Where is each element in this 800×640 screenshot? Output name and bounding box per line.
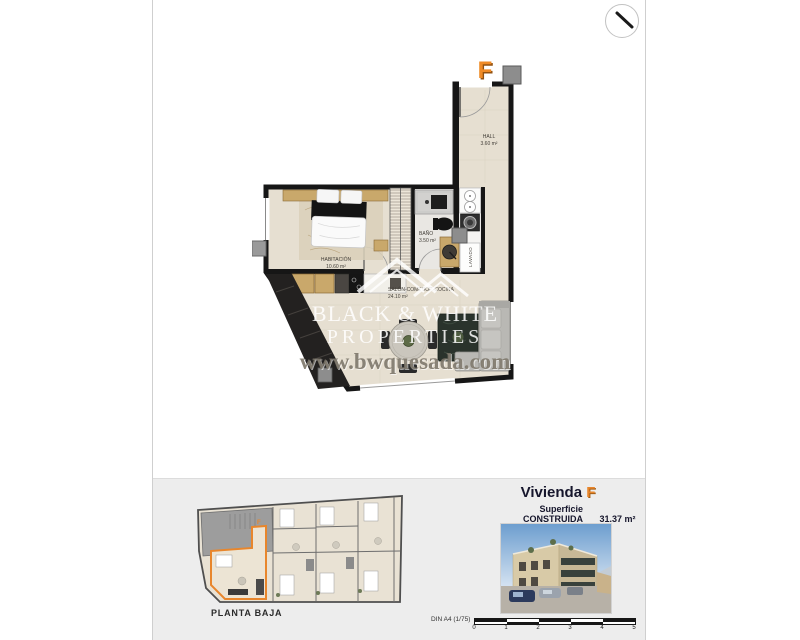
scale-tick-labels: 0 1 2 3 4 5 — [474, 625, 636, 633]
scale-segment — [603, 619, 635, 622]
scale-bar — [474, 618, 636, 625]
page-border-right — [645, 0, 646, 640]
main-floor-plan: HALL 3.60 m² BAÑO 3.50 m² HABITACIÓN 10.… — [252, 50, 532, 395]
label-lavado: LAVADO — [468, 247, 473, 267]
label-bano-area: 3.50 m² — [419, 238, 436, 244]
label-bano: BAÑO — [419, 230, 433, 237]
scale-tick: 1 — [504, 625, 507, 631]
scale-tick: 4 — [600, 625, 603, 631]
unit-letter: F F — [478, 57, 494, 85]
scale-segment — [507, 622, 539, 625]
document-page: HALL 3.60 m² BAÑO 3.50 m² HABITACIÓN 10.… — [0, 0, 800, 640]
scale-tick: 0 — [472, 625, 475, 631]
label-hall: HALL — [483, 134, 496, 140]
footer-panel: F PLANTA BAJA Vivienda F Superficie CONS… — [153, 478, 645, 640]
unit-title-name: Vivienda — [521, 484, 582, 501]
scale-segment — [475, 619, 507, 622]
scale-segment — [571, 622, 603, 625]
label-hall-area: 3.60 m² — [481, 141, 498, 147]
planta-baja-mini-plan: F — [168, 489, 416, 615]
svg-text:F: F — [478, 57, 493, 84]
scale-segment — [539, 619, 571, 622]
mini-unit-letter: F — [257, 520, 261, 526]
unit-title: Vivienda F — [483, 484, 633, 501]
surface-label: Superficie CONSTRUIDA — [478, 504, 583, 524]
surface-row: Superficie CONSTRUIDA 31.37 m² — [478, 504, 643, 524]
scale-tick: 3 — [568, 625, 571, 631]
label-habitacion-area: 10.60 m² — [326, 264, 346, 270]
scale-tick: 2 — [536, 625, 539, 631]
wardrobe — [390, 188, 411, 270]
north-arrow-needle — [606, 5, 638, 37]
unit-title-letter: F — [586, 484, 595, 501]
planta-baja-label: PLANTA BAJA — [211, 608, 282, 618]
north-arrow-icon — [605, 4, 639, 38]
scale-tick: 5 — [632, 625, 635, 631]
sheet-scale-label: DIN A4 (1/75) — [431, 616, 470, 623]
label-habitacion: HABITACIÓN — [321, 256, 352, 263]
building-photo — [500, 523, 612, 614]
label-salon-area: 24.10 m² — [388, 294, 408, 300]
